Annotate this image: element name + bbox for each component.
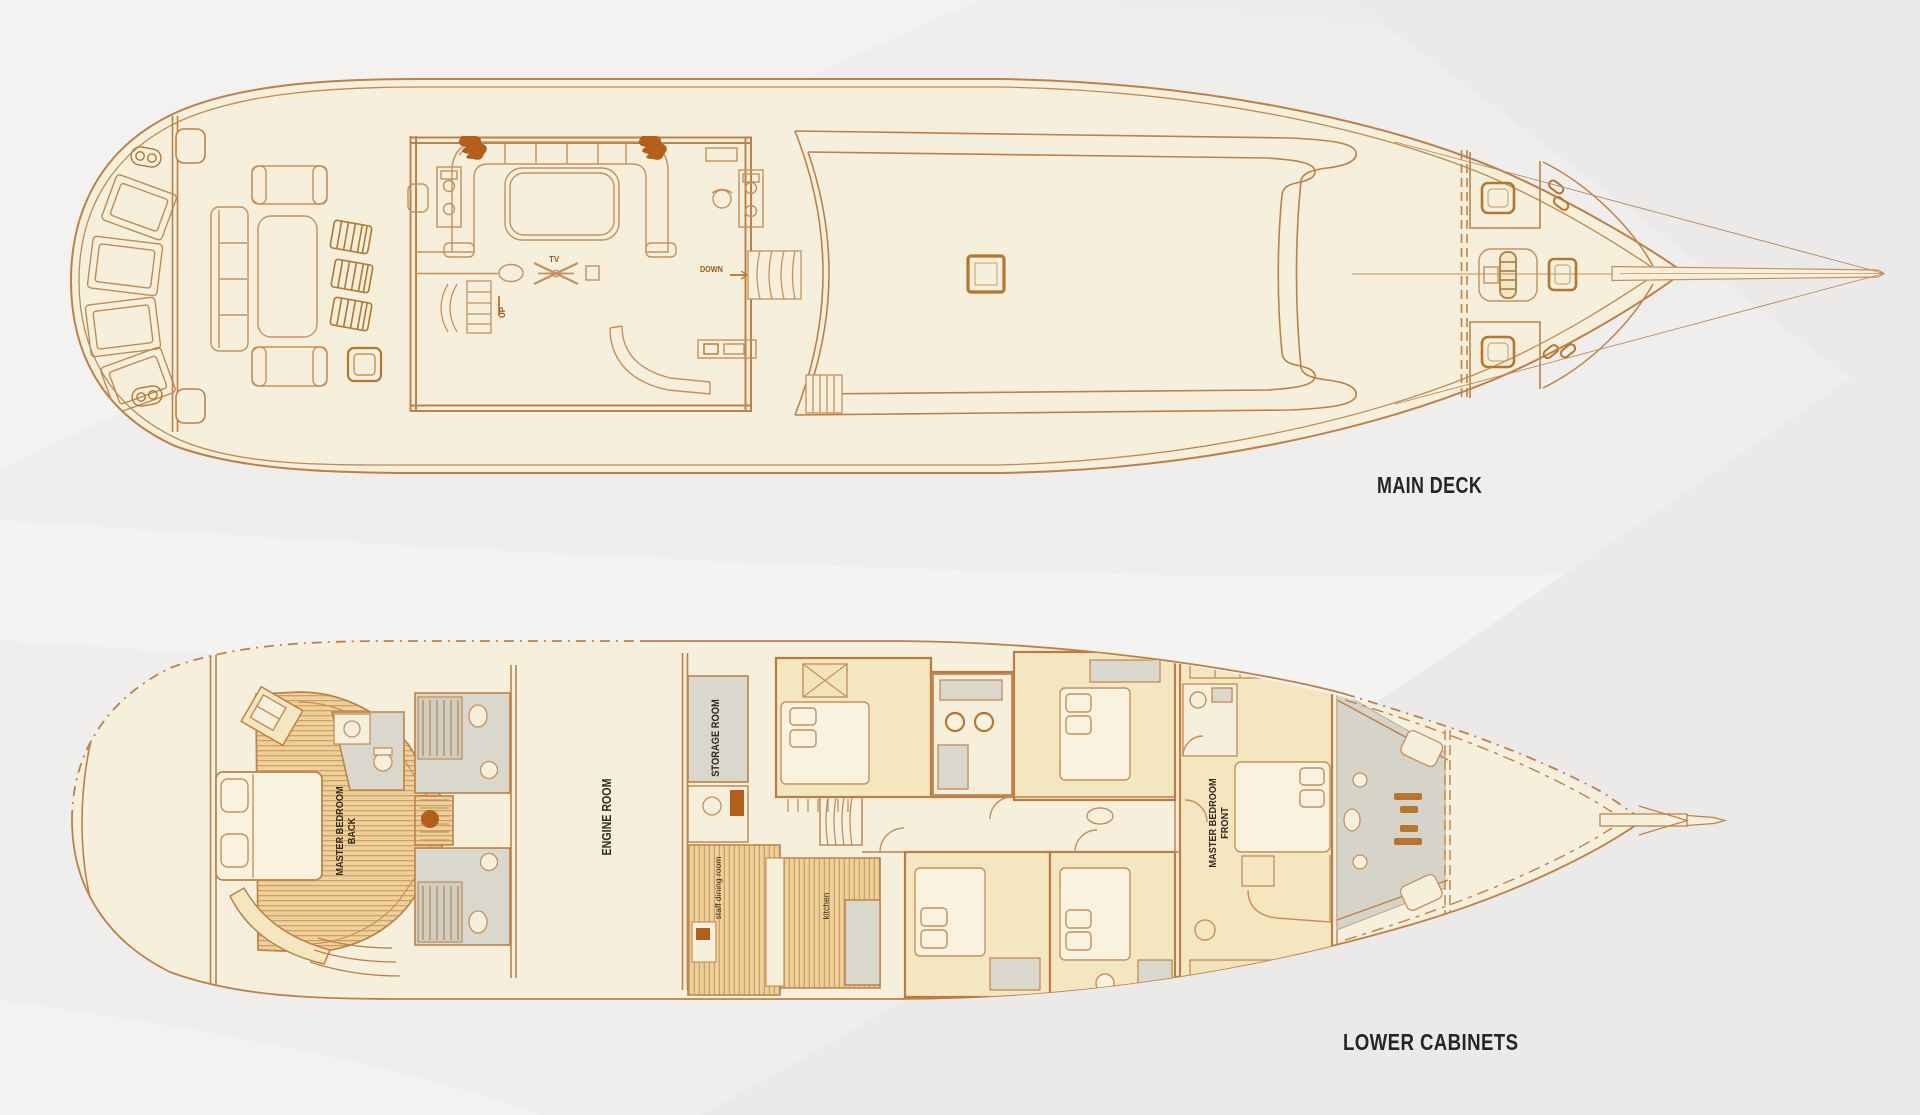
svg-text:ENGINE ROOM: ENGINE ROOM: [599, 778, 614, 855]
svg-text:BACK: BACK: [347, 818, 358, 845]
svg-text:staff dining room: staff dining room: [713, 857, 723, 920]
svg-text:TV: TV: [549, 255, 560, 264]
svg-text:DOWN: DOWN: [700, 265, 723, 274]
svg-text:kitchen: kitchen: [821, 892, 831, 919]
svg-text:MASTER BEDROOM: MASTER BEDROOM: [335, 786, 346, 875]
svg-text:UP: UP: [498, 306, 507, 318]
svg-text:MASTER BEDROOM: MASTER BEDROOM: [1208, 778, 1219, 867]
svg-text:FRONT: FRONT: [1220, 807, 1231, 839]
svg-text:STORAGE ROOM: STORAGE ROOM: [710, 699, 722, 777]
